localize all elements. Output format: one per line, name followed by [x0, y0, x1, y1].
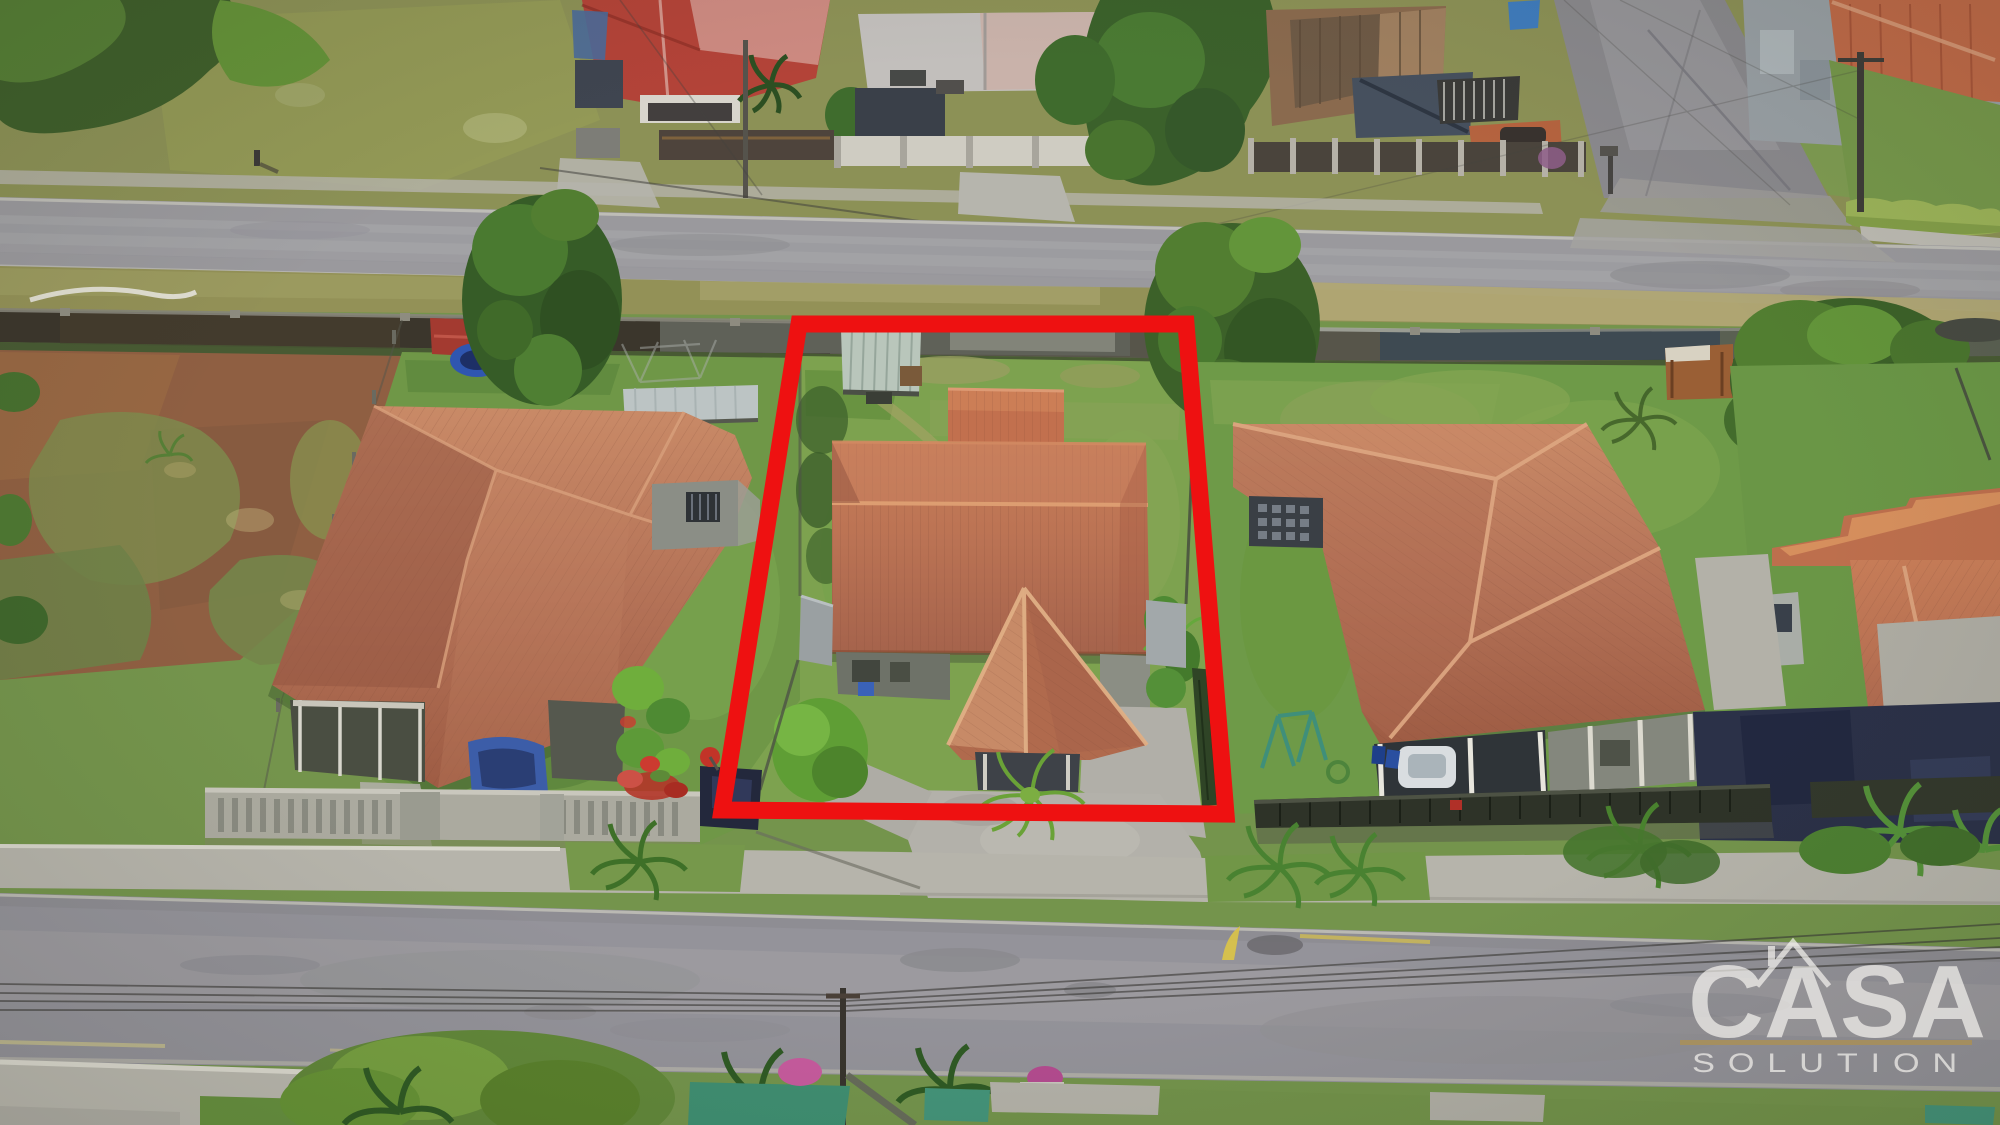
svg-text:SOLUTION: SOLUTION — [1692, 1048, 1970, 1078]
